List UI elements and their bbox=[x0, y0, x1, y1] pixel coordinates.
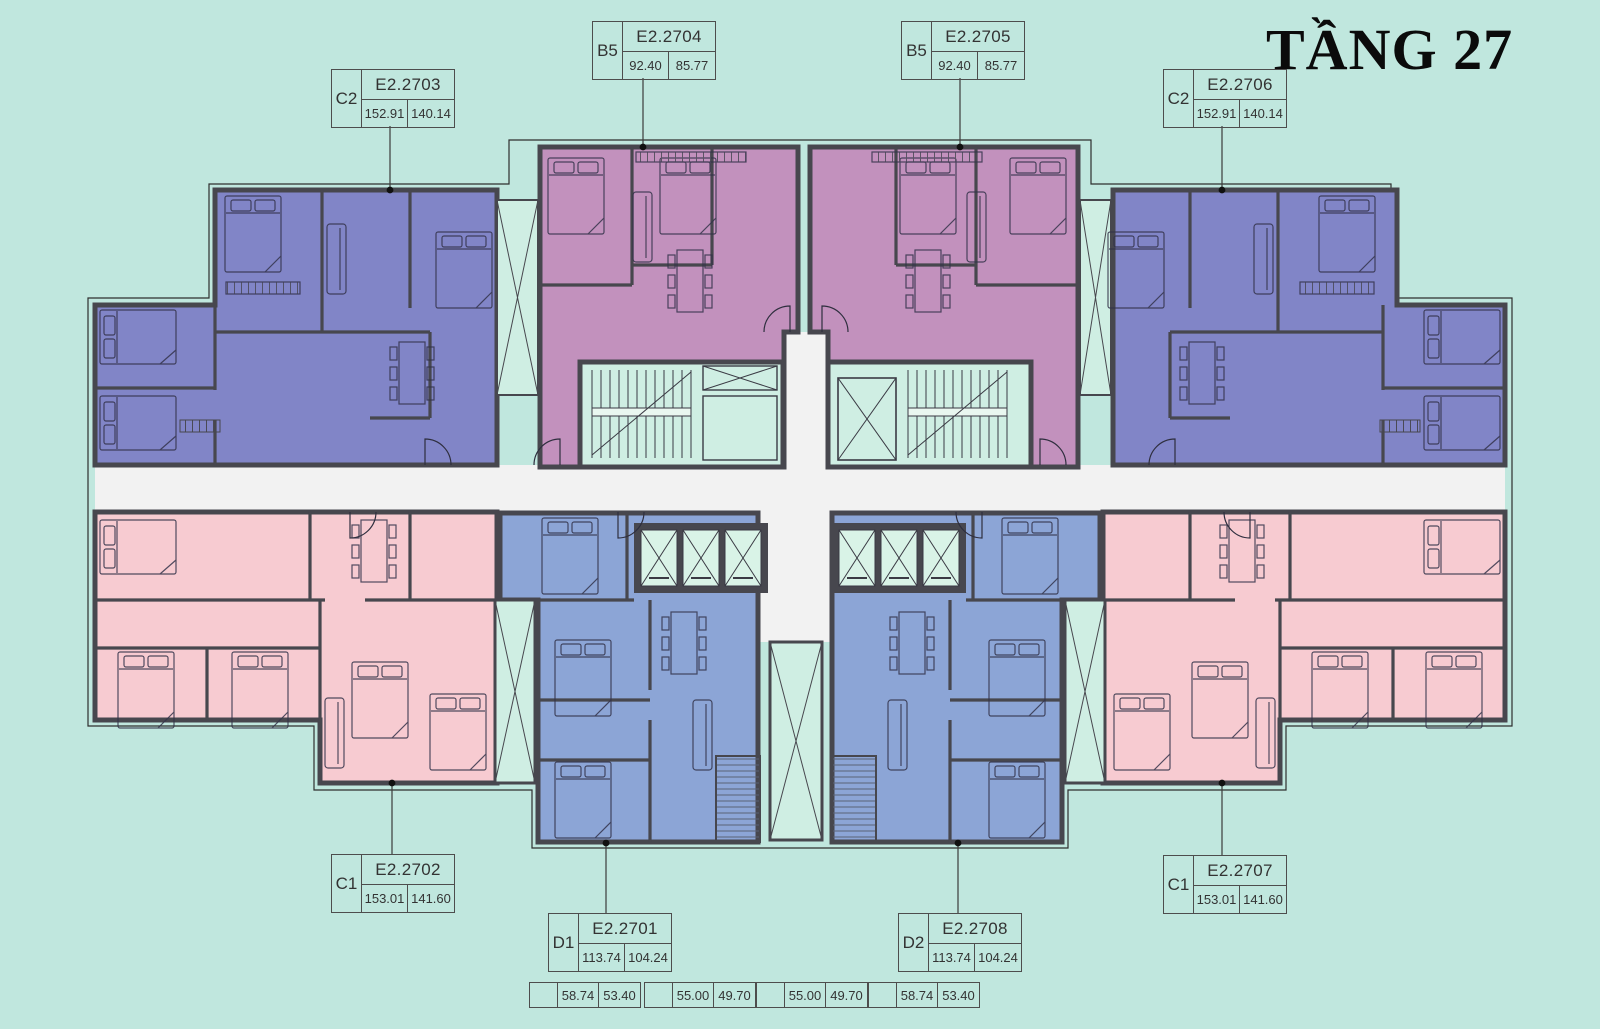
dimension-box-2: 55.00 49.70 bbox=[644, 982, 756, 1008]
elevator-bank-right bbox=[832, 523, 966, 593]
unit-label-e2-2706: C2 E2.2706 152.91 140.14 bbox=[1163, 69, 1287, 128]
dimension-value: 53.40 bbox=[599, 983, 640, 1007]
unit-code: E2.2707 bbox=[1194, 856, 1286, 886]
unit-code: E2.2703 bbox=[362, 70, 454, 100]
dimension-value: 55.00 bbox=[785, 983, 826, 1007]
unit-area-gross: 92.40 bbox=[623, 52, 669, 79]
dimension-box-4: 58.74 53.40 bbox=[868, 982, 980, 1008]
unit-type: B5 bbox=[902, 22, 932, 79]
unit-label-e2-2705: B5 E2.2705 92.40 85.77 bbox=[901, 21, 1025, 80]
unit-area-net: 141.60 bbox=[408, 885, 454, 912]
dimension-value: 53.40 bbox=[938, 983, 979, 1007]
dimension-box-1: 58.74 53.40 bbox=[529, 982, 641, 1008]
floor-plan-drawing bbox=[0, 0, 1600, 1029]
unit-area-net: 140.14 bbox=[408, 100, 454, 127]
unit-type: B5 bbox=[593, 22, 623, 79]
dimension-value: 55.00 bbox=[673, 983, 714, 1007]
unit-type: C1 bbox=[1164, 856, 1194, 913]
unit-type: D2 bbox=[899, 914, 929, 971]
dimension-value: 49.70 bbox=[826, 983, 867, 1007]
unit-area-gross: 92.40 bbox=[932, 52, 978, 79]
dimension-value: 58.74 bbox=[558, 983, 599, 1007]
dimension-box-3: 55.00 49.70 bbox=[756, 982, 868, 1008]
unit-label-e2-2701: D1 E2.2701 113.74 104.24 bbox=[548, 913, 672, 972]
unit-area-net: 85.77 bbox=[978, 52, 1024, 79]
unit-label-e2-2708: D2 E2.2708 113.74 104.24 bbox=[898, 913, 1022, 972]
unit-type: C2 bbox=[332, 70, 362, 127]
unit-area-gross: 153.01 bbox=[362, 885, 408, 912]
unit-type: D1 bbox=[549, 914, 579, 971]
unit-code: E2.2708 bbox=[929, 914, 1021, 944]
elevator-bank-left bbox=[634, 523, 768, 593]
unit-area-net: 140.14 bbox=[1240, 100, 1286, 127]
unit-area-net: 85.77 bbox=[669, 52, 715, 79]
stair-core-right bbox=[828, 362, 1031, 467]
unit-type: C1 bbox=[332, 855, 362, 912]
unit-label-e2-2707: C1 E2.2707 153.01 141.60 bbox=[1163, 855, 1287, 914]
dimension-spacer bbox=[530, 983, 558, 1007]
unit-area-gross: 152.91 bbox=[1194, 100, 1240, 127]
unit-area-gross: 113.74 bbox=[929, 944, 975, 971]
floor-plan-page: TẦNG 27 C2 E2.2703 152.91 140.14 B5 E2.2… bbox=[0, 0, 1600, 1029]
unit-type: C2 bbox=[1164, 70, 1194, 127]
unit-label-e2-2704: B5 E2.2704 92.40 85.77 bbox=[592, 21, 716, 80]
unit-area-gross: 153.01 bbox=[1194, 886, 1240, 913]
dimension-spacer bbox=[645, 983, 673, 1007]
dimension-value: 58.74 bbox=[897, 983, 938, 1007]
unit-area-net: 104.24 bbox=[625, 944, 671, 971]
unit-area-net: 104.24 bbox=[975, 944, 1021, 971]
unit-code: E2.2706 bbox=[1194, 70, 1286, 100]
dimension-spacer bbox=[869, 983, 897, 1007]
unit-code: E2.2705 bbox=[932, 22, 1024, 52]
unit-code: E2.2701 bbox=[579, 914, 671, 944]
unit-area-net: 141.60 bbox=[1240, 886, 1286, 913]
unit-area-gross: 152.91 bbox=[362, 100, 408, 127]
unit-area-gross: 113.74 bbox=[579, 944, 625, 971]
unit-code: E2.2702 bbox=[362, 855, 454, 885]
dimension-spacer bbox=[757, 983, 785, 1007]
unit-code: E2.2704 bbox=[623, 22, 715, 52]
unit-label-e2-2703: C2 E2.2703 152.91 140.14 bbox=[331, 69, 455, 128]
dimension-value: 49.70 bbox=[714, 983, 755, 1007]
stair-core-left bbox=[580, 362, 783, 467]
page-title: TẦNG 27 bbox=[1266, 16, 1546, 83]
unit-label-e2-2702: C1 E2.2702 153.01 141.60 bbox=[331, 854, 455, 913]
